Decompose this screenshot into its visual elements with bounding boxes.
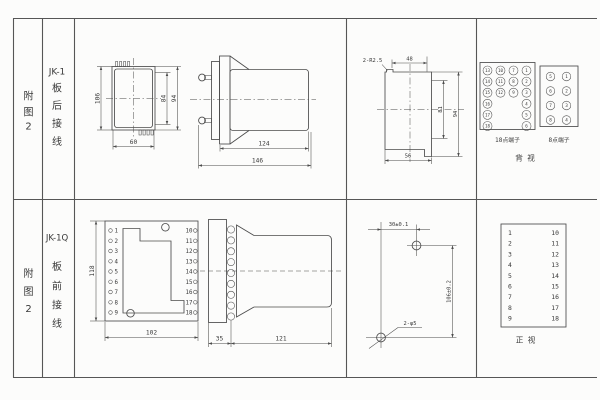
figure-char: 图: [24, 107, 34, 119]
dim-body-length: 121: [275, 336, 286, 343]
svg-text:3: 3: [508, 250, 512, 258]
row-jk1-model-label: JK-1 板 后 接 线: [48, 68, 66, 149]
jk1q-side-view: 35 121: [200, 220, 343, 348]
svg-text:18: 18: [485, 124, 490, 129]
svg-text:7: 7: [115, 290, 119, 296]
svg-text:2: 2: [525, 79, 528, 84]
svg-text:11: 11: [186, 239, 193, 245]
dim-hole-spacing-y: 106±0.2: [447, 280, 453, 303]
jk1-terminal-block-18: 13 10 7 1 14 11 8 2 15 12 9 3 16 4 17 5 …: [480, 63, 535, 145]
svg-text:9: 9: [115, 311, 119, 317]
wiring-char: 接: [52, 299, 62, 312]
svg-text:15: 15: [485, 90, 490, 95]
svg-text:16: 16: [485, 101, 490, 106]
svg-text:3: 3: [115, 249, 119, 255]
svg-text:5: 5: [525, 112, 528, 117]
svg-text:1: 1: [525, 68, 528, 73]
svg-text:16: 16: [186, 290, 193, 296]
row-jk1-figure-label: 附 图 2: [24, 90, 34, 133]
dim-cutout-top: 48: [406, 57, 413, 63]
svg-text:4: 4: [115, 259, 119, 265]
dim-total-length: 146: [252, 158, 263, 165]
rear-view-label: 背 视: [515, 153, 536, 163]
model-name: JK-1Q: [45, 234, 69, 244]
svg-text:4: 4: [508, 261, 512, 269]
svg-text:8: 8: [115, 300, 119, 306]
svg-text:17: 17: [551, 304, 559, 312]
svg-text:8: 8: [549, 118, 552, 124]
svg-text:8: 8: [508, 304, 512, 312]
svg-text:6: 6: [549, 89, 552, 95]
svg-text:7: 7: [512, 68, 515, 73]
jk1-side-view: 124 146: [190, 56, 316, 169]
corner-radius-label: 2-R2.5: [363, 58, 382, 64]
svg-text:13: 13: [186, 259, 193, 265]
dim-overall-height: 106: [95, 93, 102, 104]
dim-cutout-inner-height: 81: [438, 106, 444, 113]
svg-text:9: 9: [508, 315, 512, 323]
dim-cutout-bottom: 56: [405, 154, 412, 160]
front-view-label: 正 视: [516, 335, 537, 345]
svg-text:6: 6: [525, 124, 528, 129]
terminal-8-label: 8点端子: [548, 136, 569, 144]
svg-text:15: 15: [551, 283, 559, 291]
svg-text:4: 4: [525, 101, 528, 106]
svg-text:3: 3: [525, 90, 528, 95]
svg-text:16: 16: [551, 293, 559, 301]
svg-text:5: 5: [115, 270, 119, 276]
wiring-char: 板: [52, 82, 62, 95]
svg-text:8: 8: [512, 79, 515, 84]
figure-char: 附: [24, 267, 34, 280]
svg-text:12: 12: [551, 250, 559, 258]
svg-text:17: 17: [186, 300, 193, 306]
svg-text:18: 18: [186, 311, 193, 317]
jk1-terminal-block-8: 5 1 6 2 7 3 8 4 8点端子: [540, 66, 578, 144]
jk1-panel-cutout: 48 2-R2.5 81 94 56: [363, 57, 464, 165]
svg-text:9: 9: [512, 90, 515, 95]
svg-text:12: 12: [498, 90, 503, 95]
svg-text:5: 5: [508, 272, 512, 280]
dim-width: 60: [130, 139, 138, 146]
svg-text:13: 13: [551, 261, 559, 269]
svg-text:13: 13: [485, 68, 490, 73]
svg-text:18: 18: [551, 315, 559, 323]
relay-case: [230, 70, 309, 131]
jk1q-drill-plan: 30±0.1 106±0.2 2-φ5: [366, 222, 457, 349]
svg-text:7: 7: [549, 103, 552, 109]
svg-text:17: 17: [485, 112, 490, 117]
wiring-char: 线: [52, 317, 62, 330]
svg-text:4: 4: [565, 118, 568, 124]
model-name: JK-1: [48, 68, 66, 78]
drawing-canvas: 附 图 2 JK-1 板 后 接 线 106 84 94 60 124 146 …: [0, 0, 600, 400]
svg-text:12: 12: [186, 249, 193, 255]
figure-char: 附: [24, 90, 34, 103]
svg-text:14: 14: [551, 272, 559, 280]
svg-text:14: 14: [485, 79, 490, 84]
mounting-flange: [212, 62, 220, 140]
terminal-18-label: 18点端子: [495, 136, 520, 144]
svg-text:11: 11: [498, 79, 503, 84]
row-jk1q-model-label: JK-1Q 板 前 接 线: [45, 234, 69, 331]
svg-text:2: 2: [508, 240, 512, 248]
svg-text:5: 5: [549, 74, 552, 80]
dim-plate-depth: 35: [216, 336, 224, 343]
mounting-hole: [162, 224, 170, 232]
svg-text:6: 6: [508, 283, 512, 291]
dim-cutout-outer-height: 94: [453, 111, 459, 118]
svg-text:3: 3: [565, 103, 568, 109]
svg-text:1: 1: [115, 229, 119, 235]
svg-text:10: 10: [186, 229, 193, 235]
svg-text:1: 1: [565, 74, 568, 80]
svg-text:15: 15: [186, 280, 193, 286]
dim-socket-width: 102: [146, 330, 157, 337]
dim-socket-height: 118: [89, 265, 96, 276]
svg-text:10: 10: [498, 68, 503, 73]
svg-text:10: 10: [551, 229, 559, 237]
row-jk1q-figure-label: 附 图 2: [24, 267, 34, 315]
socket-window: [123, 229, 184, 314]
cutout-outline: [385, 70, 432, 157]
wiring-char: 后: [52, 100, 62, 112]
figure-char: 2: [25, 122, 31, 133]
dim-hole-spacing-x: 30±0.1: [389, 222, 408, 228]
svg-text:14: 14: [186, 270, 193, 276]
holes-callout: 2-φ5: [404, 321, 417, 327]
svg-text:1: 1: [508, 229, 512, 237]
mounting-plate: [220, 56, 231, 144]
figure-char: 2: [25, 304, 31, 315]
wiring-char: 线: [52, 135, 62, 148]
dim-inner-height: 84: [161, 95, 168, 103]
svg-text:11: 11: [551, 240, 559, 248]
figure-char: 图: [24, 286, 34, 298]
jk1q-front-panel-map: 110 211 312 413 514 615 716 817 918 正 视: [501, 224, 566, 345]
wiring-char: 前: [52, 280, 62, 293]
dim-mid-height: 94: [171, 95, 178, 103]
svg-text:7: 7: [508, 293, 512, 301]
jk1q-front-view: 1 2 3 4 5 6 7 8 9 10 11 12 13 14 15 16 1…: [89, 221, 198, 341]
svg-text:2: 2: [115, 239, 119, 245]
wiring-char: 板: [52, 260, 62, 273]
svg-text:6: 6: [115, 280, 119, 286]
dim-body-length: 124: [258, 141, 269, 148]
svg-text:2: 2: [565, 89, 568, 95]
terminal-block-outline: [540, 66, 578, 127]
jk1-front-view: 106 84 94 60: [95, 58, 182, 150]
wiring-char: 接: [52, 117, 62, 130]
relay-dimension-drawing-page: 附 图 2 JK-1 板 后 接 线 106 84 94 60 124 146 …: [0, 0, 600, 400]
